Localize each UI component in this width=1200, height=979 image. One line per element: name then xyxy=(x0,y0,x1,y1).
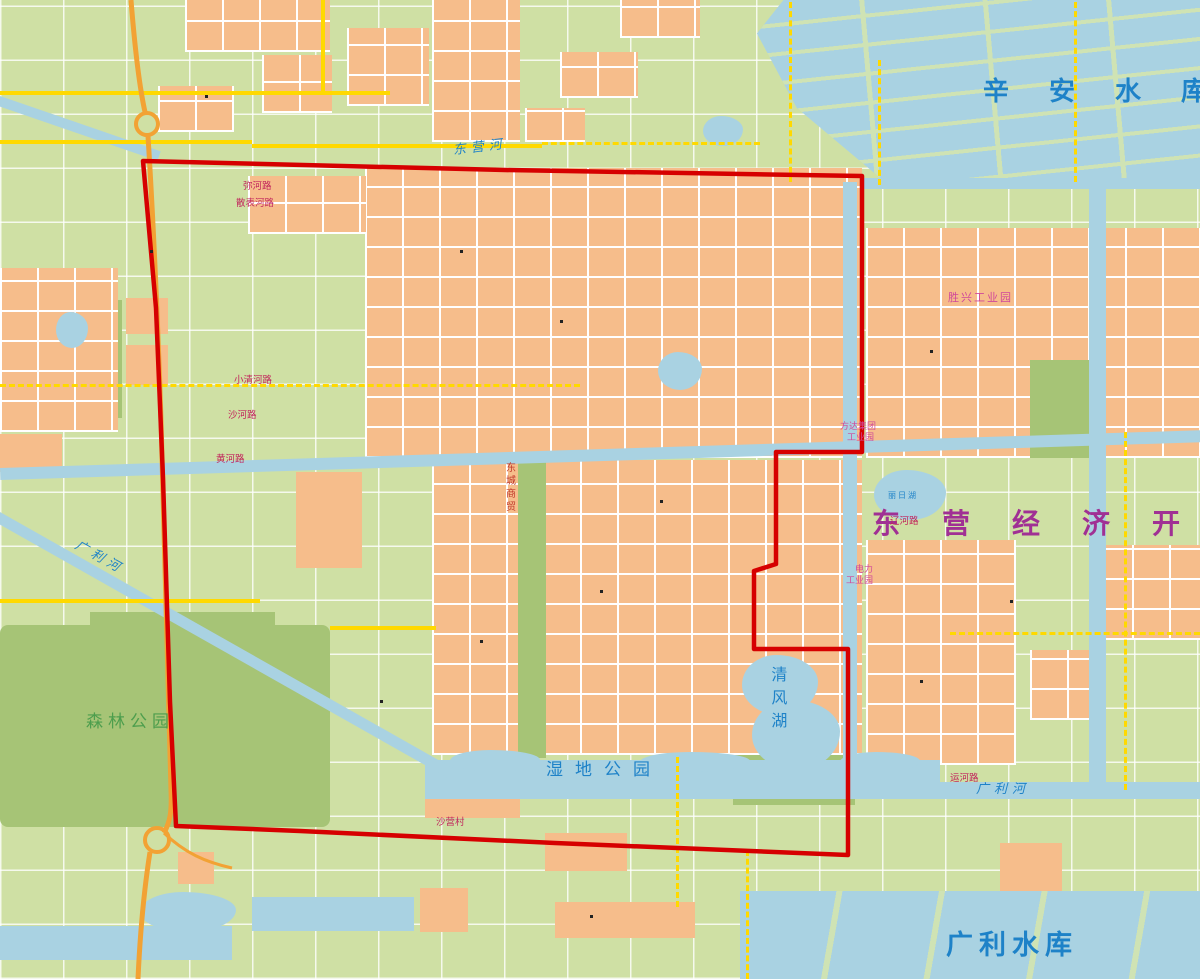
village-marker xyxy=(600,590,603,593)
fangda-industrial-label-2: 工业园 xyxy=(847,433,874,443)
forest-park-label: 森林公园 xyxy=(86,713,174,733)
village-marker xyxy=(590,915,593,918)
map-canvas[interactable]: 辛安水库广利水库东营经济开森林公园湿地公园清风湖丽日湖广利河广利河东营河小清河路… xyxy=(0,0,1200,979)
village-marker xyxy=(1010,600,1013,603)
power-industrial-label-2: 工业园 xyxy=(846,576,873,586)
village-marker xyxy=(380,700,383,703)
village-marker xyxy=(480,640,483,643)
dongcheng-trade-label: 东城商贸 xyxy=(503,462,515,514)
wetland-park-label: 湿地公园 xyxy=(546,761,662,781)
village-marker xyxy=(920,680,923,683)
xiaoqinghe-road-label: 小清河路 xyxy=(234,376,272,387)
huanghe-road-label: 黄河路 xyxy=(216,455,245,466)
village-marker xyxy=(660,500,663,503)
sanbiao-road-label: 散表河路 xyxy=(236,199,274,210)
guangli-reservoir-label: 广利水库 xyxy=(946,930,1078,961)
liaohe-road-label: 辽河路 xyxy=(890,517,919,528)
expressway-path xyxy=(131,0,232,979)
shaying-village-label: 沙营村 xyxy=(436,818,465,829)
shahe-road-label: 沙河路 xyxy=(228,411,257,422)
village-marker xyxy=(460,250,463,253)
road-and-boundary-overlay xyxy=(0,0,1200,979)
fangda-industrial-label-1: 方达集团 xyxy=(840,422,876,432)
qingfeng-lake-label: 清风湖 xyxy=(768,666,786,735)
mihe-road-label: 弥河路 xyxy=(243,182,272,193)
shengxing-industrial-label: 胜兴工业园 xyxy=(948,292,1013,305)
xinan-reservoir-label: 辛安水库 xyxy=(983,78,1200,108)
power-industrial-label-1: 电力 xyxy=(855,565,873,575)
village-marker xyxy=(560,320,563,323)
village-marker xyxy=(205,95,208,98)
guangli-river-east-label: 广利河 xyxy=(976,783,1030,798)
village-marker xyxy=(150,250,153,253)
dev-zone-label: 东营经济开 xyxy=(872,508,1200,540)
yunhe-road-label: 运河路 xyxy=(950,774,979,785)
village-marker xyxy=(930,350,933,353)
liri-lake-label: 丽日湖 xyxy=(888,491,918,500)
